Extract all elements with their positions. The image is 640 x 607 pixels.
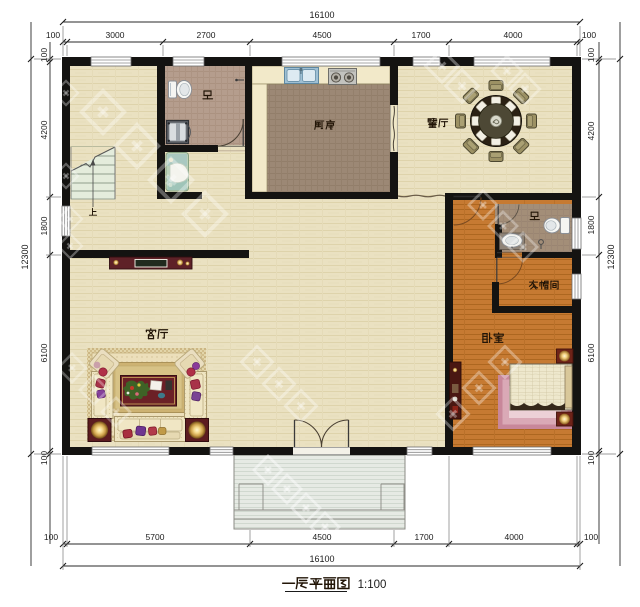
svg-text:100: 100 (584, 532, 598, 542)
svg-text:12300: 12300 (606, 244, 616, 269)
svg-text:1800: 1800 (39, 216, 49, 235)
svg-text:100: 100 (46, 30, 60, 40)
svg-text:12300: 12300 (20, 244, 30, 269)
svg-text:1700: 1700 (415, 532, 434, 542)
svg-text:6100: 6100 (39, 343, 49, 362)
svg-text:4200: 4200 (586, 121, 596, 140)
svg-text:4500: 4500 (313, 30, 332, 40)
svg-text:4000: 4000 (505, 532, 524, 542)
svg-text:1:100: 1:100 (358, 579, 387, 591)
svg-text:100: 100 (39, 451, 49, 465)
svg-text:100: 100 (586, 451, 596, 465)
svg-text:6100: 6100 (586, 343, 596, 362)
svg-text:4200: 4200 (39, 120, 49, 139)
svg-text:5700: 5700 (146, 532, 165, 542)
svg-text:2700: 2700 (197, 30, 216, 40)
svg-text:1700: 1700 (412, 30, 431, 40)
svg-text:100: 100 (582, 30, 596, 40)
svg-text:16100: 16100 (309, 10, 334, 20)
svg-text:1800: 1800 (586, 215, 596, 234)
svg-text:100: 100 (44, 532, 58, 542)
svg-text:100: 100 (39, 48, 49, 62)
svg-text:100: 100 (586, 48, 596, 62)
svg-text:4500: 4500 (313, 532, 332, 542)
svg-text:3000: 3000 (106, 30, 125, 40)
svg-text:16100: 16100 (309, 554, 334, 564)
svg-text:4000: 4000 (504, 30, 523, 40)
